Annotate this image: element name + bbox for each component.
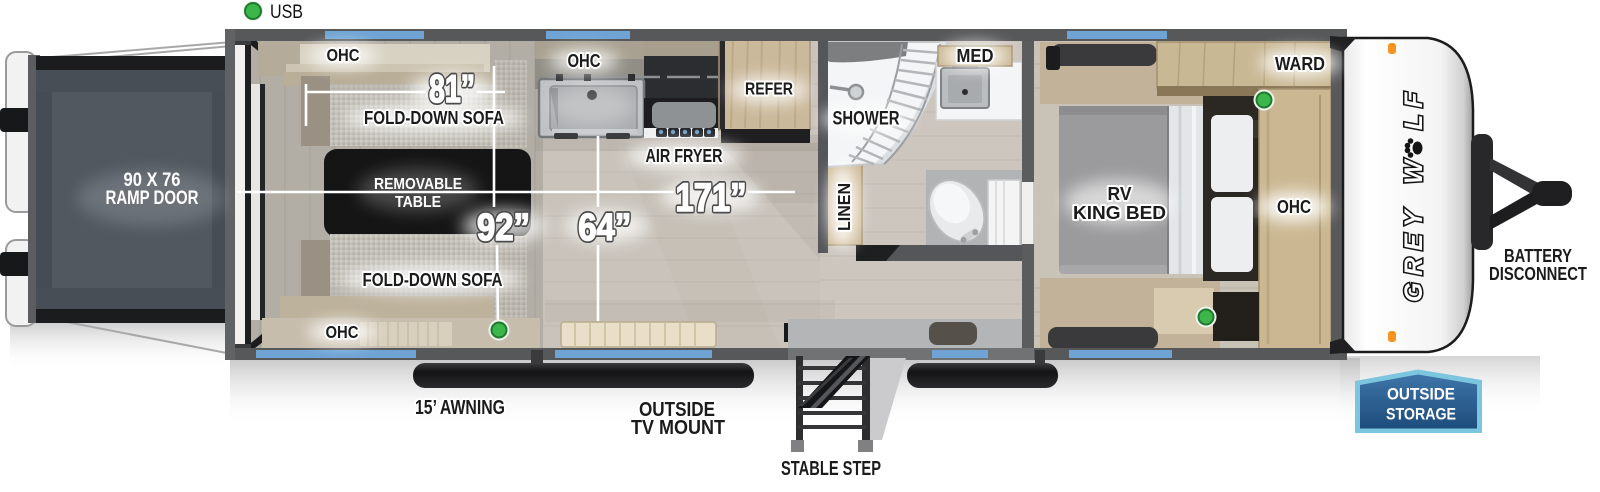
svg-text:STORAGE: STORAGE xyxy=(1386,406,1456,424)
svg-text:RV: RV xyxy=(1108,183,1133,204)
svg-text:LINEN: LINEN xyxy=(834,183,854,231)
svg-text:OHC: OHC xyxy=(568,51,601,71)
svg-text:STABLE STEP: STABLE STEP xyxy=(781,458,881,480)
svg-text:SHOWER: SHOWER xyxy=(833,108,900,130)
svg-text:AIR FRYER: AIR FRYER xyxy=(646,145,723,166)
svg-text:TV MOUNT: TV MOUNT xyxy=(631,417,725,439)
svg-text:REMOVABLE: REMOVABLE xyxy=(374,176,462,193)
svg-text:92”: 92” xyxy=(477,207,530,249)
svg-text:WARD: WARD xyxy=(1275,53,1325,74)
svg-text:OHC: OHC xyxy=(326,322,359,342)
svg-text:OHC: OHC xyxy=(1277,196,1311,217)
svg-text:GREY: GREY xyxy=(1400,203,1428,302)
svg-text:64”: 64” xyxy=(578,207,631,249)
svg-text:171”: 171” xyxy=(676,176,747,220)
svg-text:OUTSIDE: OUTSIDE xyxy=(1387,386,1455,404)
svg-text:KING BED: KING BED xyxy=(1073,202,1166,223)
svg-text:MED: MED xyxy=(957,46,994,66)
svg-text:FOLD-DOWN SOFA: FOLD-DOWN SOFA xyxy=(363,269,503,290)
svg-text:TABLE: TABLE xyxy=(395,194,441,211)
svg-text:15’ AWNING: 15’ AWNING xyxy=(415,397,505,419)
svg-text:W: W xyxy=(1400,153,1428,184)
svg-text:FOLD-DOWN SOFA: FOLD-DOWN SOFA xyxy=(364,107,504,128)
svg-text:LF: LF xyxy=(1400,85,1428,130)
svg-text:OHC: OHC xyxy=(327,45,360,65)
svg-text:DISCONNECT: DISCONNECT xyxy=(1489,264,1587,284)
svg-text:REFER: REFER xyxy=(745,79,793,99)
svg-text:BATTERY: BATTERY xyxy=(1504,246,1572,266)
svg-text:81”: 81” xyxy=(429,68,475,111)
svg-text:USB: USB xyxy=(270,2,303,23)
